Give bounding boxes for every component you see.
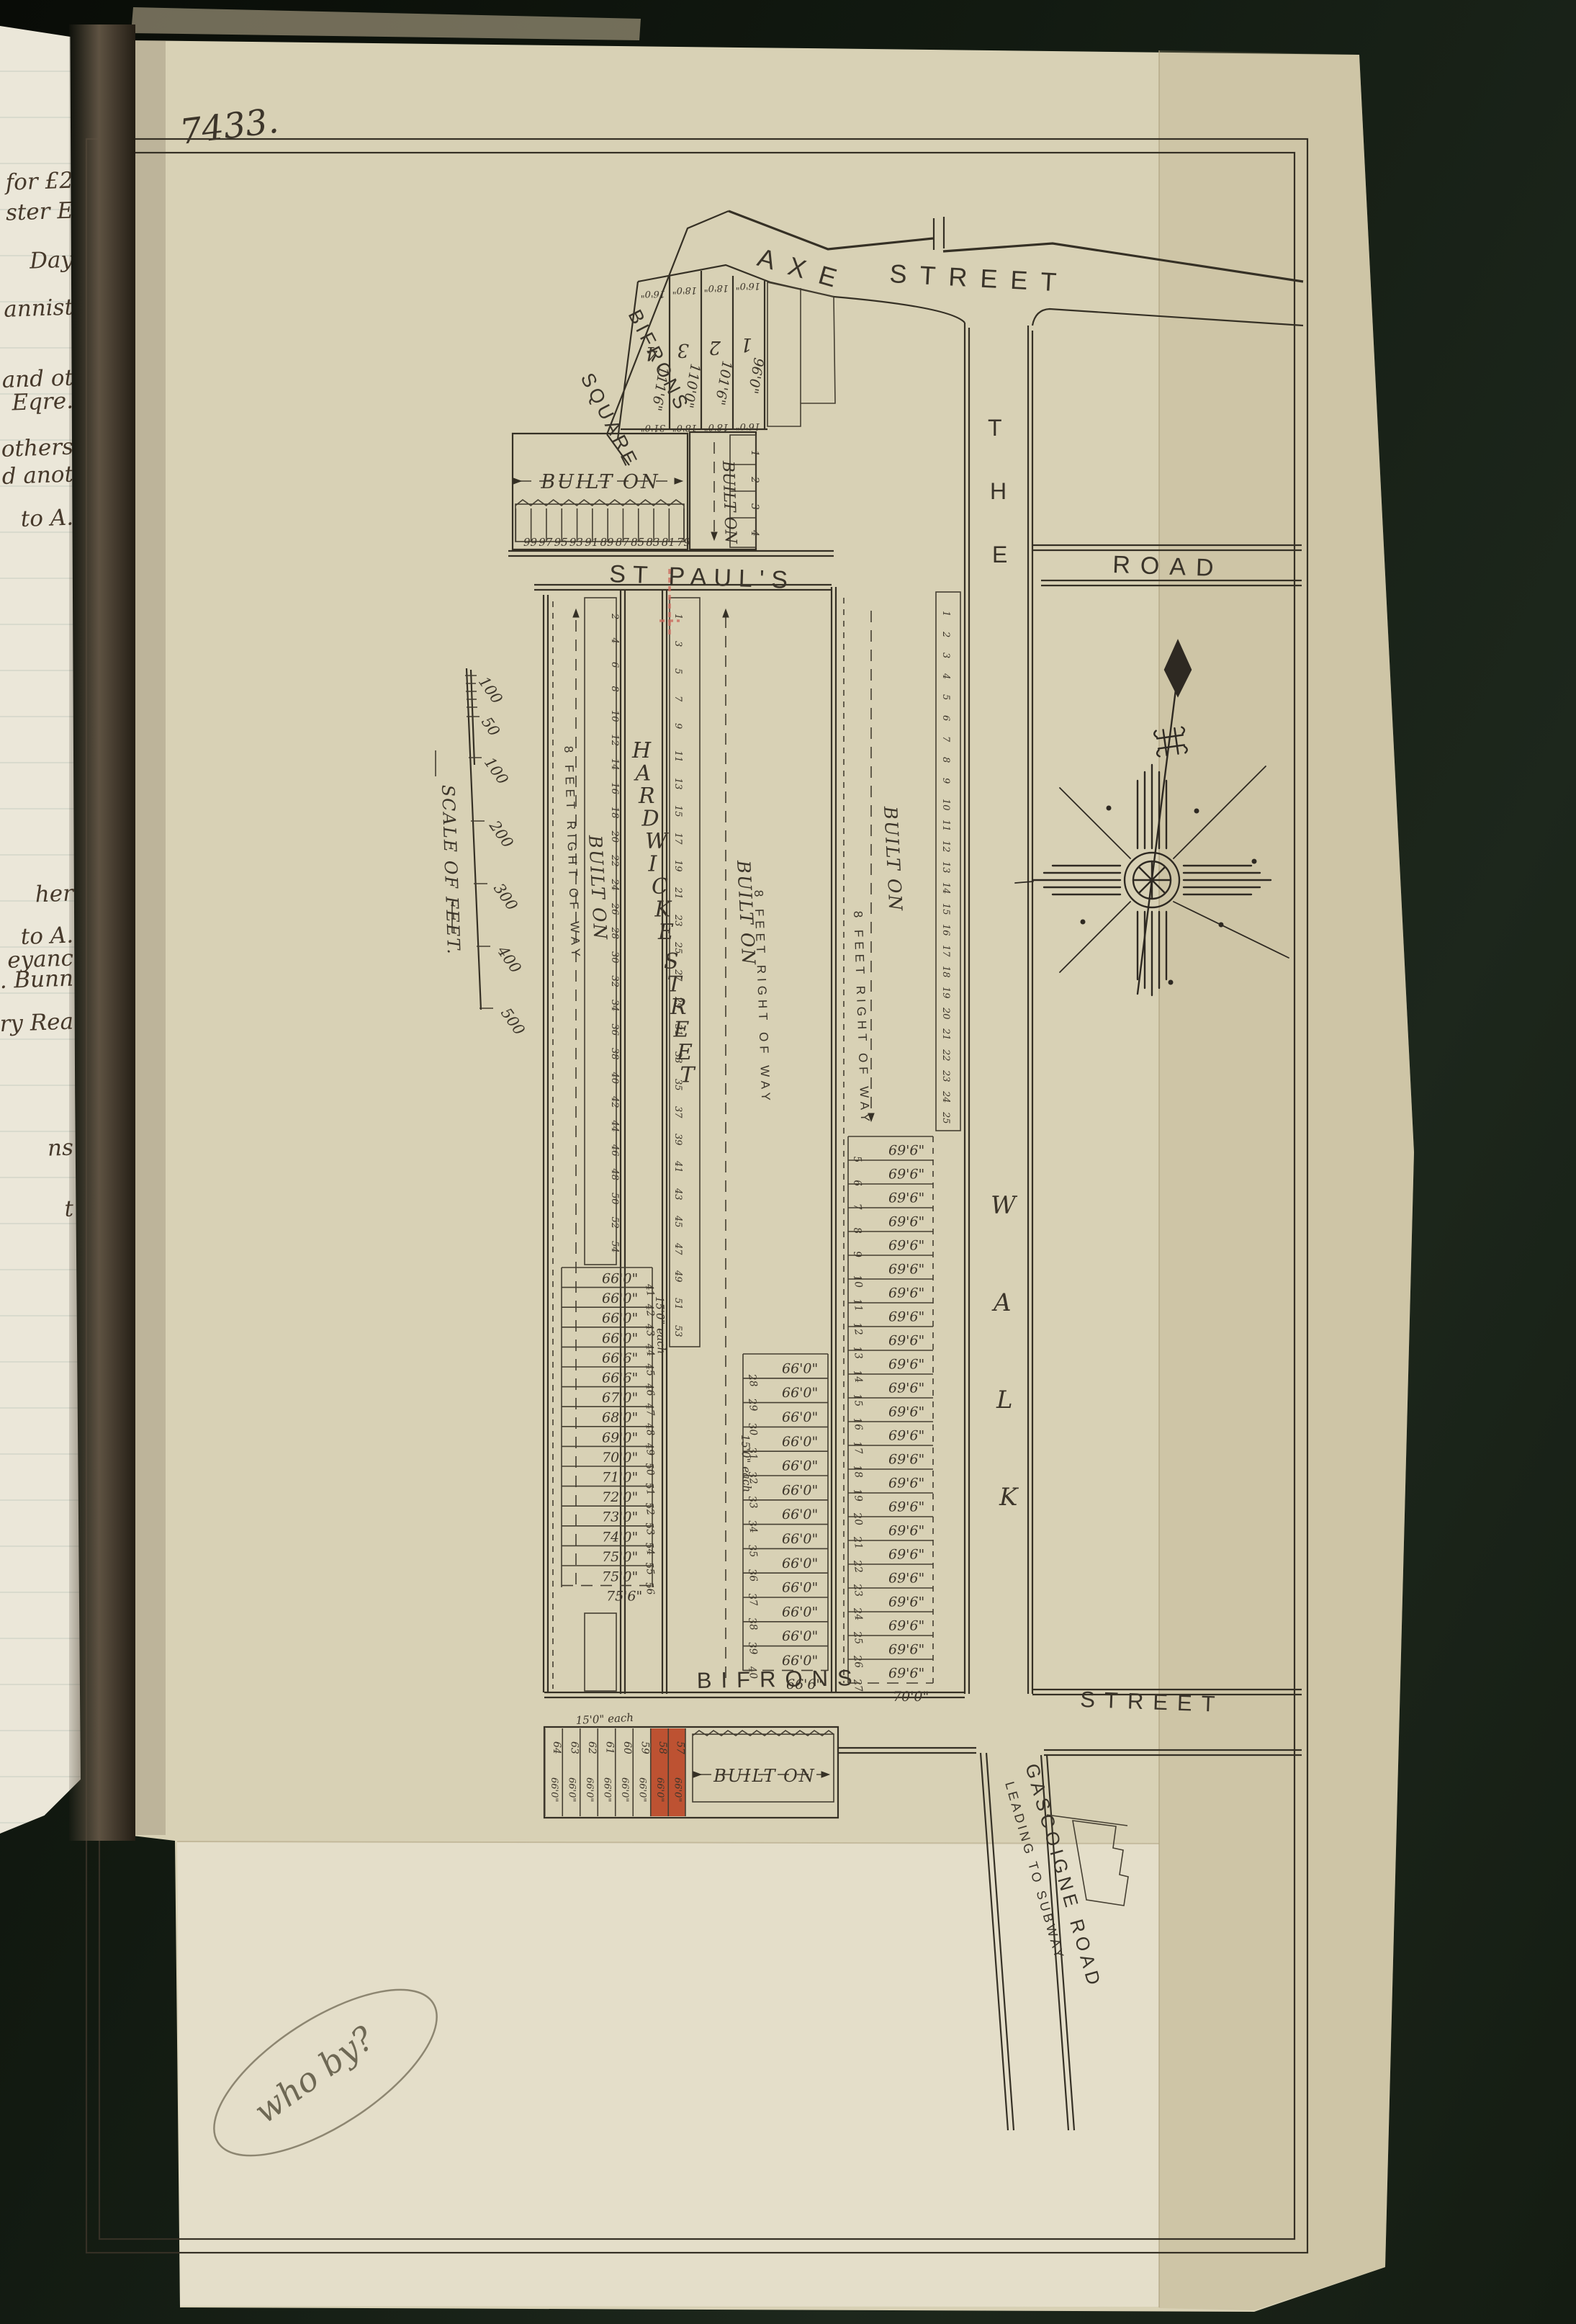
plot-number: 56 [643, 1582, 656, 1596]
street-letter: R [670, 995, 687, 1020]
house-number: 11 [940, 820, 951, 832]
house-number: 16 [940, 924, 951, 936]
ledger-fragment: her [0, 881, 74, 912]
house-number: 45 [672, 1215, 683, 1228]
plot-number: 29 [746, 1397, 759, 1412]
plot-value: 66'0" [782, 1604, 818, 1620]
street-letter: T [988, 415, 1002, 441]
plot-number: 48 [643, 1422, 656, 1437]
house-number: 8 [609, 686, 620, 692]
street-letter: R [638, 784, 655, 809]
plot-value: 69'6" [888, 1381, 924, 1396]
house-number: 42 [609, 1095, 620, 1108]
plot-number: 13 [851, 1345, 864, 1360]
house-number: 47 [672, 1242, 683, 1255]
plot-number: 57 [675, 1741, 686, 1754]
plot-number: 24 [851, 1606, 864, 1621]
plot-number: 99 [523, 536, 538, 549]
street-letter: T [680, 1063, 696, 1088]
plot-value: 69'6" [888, 1428, 924, 1444]
house-number: 46 [609, 1144, 620, 1157]
plot-value: 69'6" [888, 1286, 924, 1301]
plot-width: 16'0" [641, 288, 665, 299]
street-letter: I [648, 852, 658, 877]
plot-value: 66'0" [782, 1482, 818, 1498]
plot-value: 69'6" [888, 1404, 924, 1420]
house-number: 28 [609, 927, 620, 940]
house-number: 11 [672, 750, 683, 763]
plot-value: 69'6" [888, 1167, 924, 1183]
plot-value: 66'0" [782, 1628, 818, 1644]
plot-number: 21 [851, 1535, 864, 1550]
plot-number: 46 [643, 1382, 656, 1397]
street-label-bifrons: BIFRONS [697, 1665, 862, 1693]
house-number: 50 [609, 1193, 620, 1205]
ledger-fragment: try Rea [0, 1009, 74, 1040]
street-letter: A [634, 761, 652, 786]
house-number: 40 [609, 1072, 620, 1085]
house-number: 53 [672, 1325, 683, 1337]
plot-number: 20 [851, 1511, 864, 1526]
photographed-plan-page: for £2 ster E Day annist and ot Eqre. ot… [0, 0, 1576, 2324]
built-on-label: BUILT ON [719, 459, 739, 544]
plot-number: 38 [746, 1617, 759, 1631]
house-number: 6 [609, 662, 620, 668]
plot-number: 60 [621, 1741, 633, 1754]
ledger-fragment: ster E [0, 198, 74, 229]
plot-value: 69'6" [888, 1309, 924, 1325]
plot-number: 31 [746, 1446, 759, 1461]
plot-number: 17 [851, 1440, 864, 1455]
plot-value: 75'0" [602, 1549, 638, 1565]
plot-value: 69'6" [888, 1618, 924, 1634]
ledger-fragment: t [0, 1196, 74, 1227]
plot-number: 45 [643, 1362, 656, 1377]
house-number: 19 [672, 860, 683, 872]
plot-number: 54 [643, 1542, 656, 1556]
house-number: 12 [609, 735, 620, 747]
house-number: 24 [609, 879, 620, 892]
plot-value: 66'0" [782, 1531, 818, 1547]
plot-number: 34 [746, 1520, 759, 1534]
plot-width: 31'0" [641, 422, 665, 433]
house-number: 2 [940, 631, 951, 637]
house-number: 22 [609, 854, 620, 867]
ledger-fragment: B. Bunn [0, 966, 74, 997]
street-letter: E [992, 542, 1007, 567]
house-number: 18 [940, 966, 951, 978]
ledger-fragment: Day [0, 247, 74, 278]
plot-number: 41 [643, 1283, 656, 1298]
plot-value: 69'6" [888, 1666, 924, 1682]
house-number: 13 [672, 778, 683, 790]
plot-number: 81 [662, 536, 675, 549]
plot-number: 30 [746, 1422, 759, 1437]
street-letter: E [673, 1018, 690, 1043]
plot-value: 67'0" [602, 1390, 638, 1406]
plot-value: 66'0" [782, 1409, 818, 1425]
house-number: 54 [609, 1241, 620, 1253]
plot-number: 59 [639, 1741, 651, 1754]
plot-number: 61 [604, 1741, 616, 1754]
house-number: 10 [940, 799, 951, 811]
plot-number: 37 [746, 1592, 759, 1607]
plot-number: 53 [643, 1522, 656, 1536]
house-number: 51 [672, 1298, 683, 1310]
plot-value: 66'6" [602, 1350, 638, 1366]
plot-value: 69'6" [888, 1571, 924, 1587]
plot-number: 52 [643, 1502, 656, 1516]
ledger-fragment: ns [0, 1135, 74, 1166]
plot-number: 40 [746, 1665, 759, 1680]
street-label-bifrons-street: STREET [1080, 1687, 1225, 1717]
ledger-fragment: for £2 [0, 168, 74, 199]
plot-number: 44 [643, 1342, 656, 1358]
plot-number: 91 [585, 536, 598, 549]
house-number: 2 [749, 476, 760, 483]
plot-number: 35 [746, 1544, 759, 1558]
plot-value: 69'6" [888, 1214, 924, 1230]
plot-value: 69'6" [888, 1143, 924, 1159]
plot-end-value: 66'6" [786, 1677, 822, 1692]
house-number: 25 [940, 1111, 951, 1124]
plot-number: 83 [646, 536, 659, 549]
plot-number: 55 [643, 1561, 656, 1576]
house-number: 4 [609, 637, 620, 644]
plot-number: 12 [851, 1322, 864, 1336]
house-number: 5 [672, 668, 683, 674]
street-letter: E [676, 1040, 693, 1065]
plot-number: 2 [708, 336, 721, 358]
plot-number: 66'0" [602, 1777, 613, 1802]
house-number: 5 [940, 694, 951, 700]
house-number: 24 [940, 1090, 951, 1103]
house-number: 9 [672, 723, 683, 729]
plot-number: 63 [569, 1741, 580, 1754]
house-number: 7 [672, 696, 683, 702]
plot-value: 69'6" [888, 1452, 924, 1468]
plot-number: 25 [851, 1630, 864, 1645]
house-number: 9 [940, 778, 951, 784]
house-number: 1 [940, 611, 951, 616]
house-number: 3 [940, 652, 951, 658]
house-number: 1 [672, 614, 683, 619]
plot-width: 18'0" [672, 284, 697, 295]
house-number: 10 [609, 710, 620, 722]
plot-value: 66'0" [782, 1556, 818, 1571]
fold-panel-right [1159, 50, 1414, 2310]
book-gutter-shadow [69, 24, 135, 1841]
street-letter: E [657, 920, 674, 945]
plot-number: 42 [643, 1302, 656, 1317]
plot-value: 69'6" [888, 1357, 924, 1373]
street-letter: S [664, 949, 679, 974]
plot-end-value: 75'6" [606, 1588, 642, 1604]
plot-number: 66'0" [619, 1777, 630, 1802]
house-number: 43 [672, 1188, 683, 1201]
plot-number: 79 [677, 536, 691, 549]
plot-value: 69'6" [888, 1333, 924, 1349]
plot-width: 18'0" [672, 422, 697, 433]
house-number: 17 [940, 945, 951, 957]
plan-sheet: 7433. [0, 0, 1576, 2324]
plot-number: 33 [746, 1495, 759, 1509]
plot-value: 69'6" [888, 1523, 924, 1539]
street-letter: K [999, 1483, 1019, 1512]
house-number: 23 [672, 914, 683, 927]
plot-value: 66'0" [782, 1580, 818, 1596]
house-number: 6 [940, 715, 951, 721]
plot-number: 11 [851, 1298, 864, 1312]
house-number: 15 [940, 903, 951, 915]
plot-value: 66'0" [782, 1653, 818, 1669]
plot-number: 47 [643, 1401, 656, 1417]
house-number: 48 [609, 1168, 620, 1181]
plot-number: 22 [851, 1558, 864, 1574]
house-number: 44 [609, 1120, 620, 1133]
plot-number: 19 [851, 1488, 864, 1502]
house-number: 2 [609, 613, 620, 619]
house-number: 41 [672, 1160, 683, 1173]
built-on-label: BUILT ON [540, 471, 659, 493]
ledger-fragment: annist [0, 295, 74, 326]
street-letter: A [991, 1288, 1012, 1317]
plot-number: 16 [851, 1417, 864, 1431]
plot-value: 71'0" [602, 1470, 638, 1486]
house-number: 32 [609, 976, 620, 988]
street-letter: W [991, 1191, 1018, 1220]
street-letter: D [641, 807, 659, 832]
plot-value: 66'0" [782, 1360, 818, 1376]
top-page-edge [131, 7, 641, 40]
house-number: 21 [940, 1028, 951, 1041]
plot-width: 16'0" [736, 280, 760, 291]
plot-value: 68'0" [602, 1410, 638, 1426]
plot-number: 49 [643, 1442, 656, 1457]
house-number: 26 [609, 902, 620, 915]
house-number: 17 [672, 833, 683, 845]
house-number: 14 [940, 882, 951, 894]
plot-value: 66'6" [602, 1370, 638, 1386]
street-letter: K [654, 897, 672, 923]
plot-number: 66'0" [637, 1777, 648, 1802]
plot-width: 16'0" [736, 421, 760, 431]
plot-number: 36 [746, 1568, 759, 1582]
plot-number: 18 [851, 1464, 864, 1479]
house-number: 16 [609, 783, 620, 795]
ledger-fragment: d anot [0, 462, 74, 493]
plot-number: 89 [600, 536, 615, 549]
plot-number: 87 [616, 536, 630, 549]
street-letter: L [996, 1386, 1013, 1414]
plot-value: 66'0" [782, 1434, 818, 1450]
plot-number: 1 [740, 333, 752, 355]
house-number: 21 [672, 887, 683, 899]
house-number: 14 [609, 758, 620, 771]
ledger-fragment: others [0, 434, 74, 465]
plot-width: 18'0" [704, 282, 729, 293]
plot-number: 97 [539, 536, 553, 549]
street-letter: H [990, 478, 1007, 504]
house-number: 20 [940, 1007, 951, 1020]
plot-number: 93 [569, 536, 583, 549]
plot-number: 62 [586, 1741, 598, 1754]
house-number: 13 [940, 861, 951, 874]
house-number: 4 [749, 529, 760, 537]
house-number: 18 [609, 807, 620, 819]
plot-number: 26 [851, 1654, 864, 1669]
house-number: 22 [940, 1049, 951, 1062]
plot-value: 66'0" [602, 1311, 638, 1327]
plot-number: 58 [657, 1741, 668, 1754]
plot-value: 69'6" [888, 1547, 924, 1563]
ledger-fragment: to A. [0, 505, 74, 536]
plot-value: 66'0" [782, 1385, 818, 1401]
plot-number: 66'0" [584, 1777, 595, 1802]
house-number: 7 [940, 736, 951, 742]
plot-number: 4 [645, 342, 658, 364]
house-number: 36 [609, 1024, 620, 1036]
house-number: 4 [940, 673, 951, 679]
street-letter: T [667, 972, 683, 997]
plot-number: 66'0" [672, 1777, 683, 1802]
house-number: 8 [940, 757, 951, 763]
street-letter: H [631, 738, 652, 763]
plot-value: 66'0" [602, 1291, 638, 1306]
house-number: 49 [672, 1270, 683, 1283]
plot-number: 27 [851, 1677, 864, 1692]
plot-number: 15 [851, 1393, 864, 1407]
plot-value: 66'0" [602, 1271, 638, 1287]
house-number: 20 [609, 830, 620, 843]
plot-end-value: 70'0" [893, 1689, 929, 1705]
plot-value: 66'0" [782, 1458, 818, 1474]
plot-width: 18'0" [704, 421, 729, 432]
plot-value: 74'0" [602, 1529, 638, 1545]
plot-number: 50 [643, 1462, 656, 1476]
plot-number: 66'0" [549, 1777, 559, 1802]
plot-number: 3 [677, 339, 689, 361]
plot-number: 43 [643, 1322, 656, 1337]
house-number: 3 [672, 641, 683, 647]
plot-number: 95 [554, 536, 568, 549]
plot-number: 66'0" [567, 1777, 577, 1802]
plot-number: 23 [851, 1582, 864, 1597]
plot-value: 69'6" [888, 1594, 924, 1610]
plot-number: 10 [851, 1274, 864, 1288]
plot-value: 69'6" [888, 1262, 924, 1278]
house-number: 15 [672, 805, 683, 817]
house-number: 37 [672, 1106, 683, 1118]
street-label-road: ROAD [1112, 551, 1224, 582]
house-number: 38 [609, 1048, 620, 1060]
house-number: 23 [940, 1069, 951, 1082]
street-letter: W [645, 829, 669, 854]
plot-value: 72'0" [602, 1489, 638, 1505]
house-number: 12 [940, 840, 951, 853]
plot-value: 70'0" [602, 1450, 638, 1466]
plot-number: 32 [746, 1471, 759, 1485]
house-number: 1 [749, 450, 760, 457]
plot-value: 66'0" [602, 1330, 638, 1346]
ledger-fragment: Eqre. [0, 388, 74, 419]
house-number: 30 [609, 951, 620, 964]
plot-number: 39 [746, 1641, 759, 1656]
plot-value: 69'6" [888, 1238, 924, 1254]
house-number: 19 [940, 987, 951, 999]
plot-value: 69'6" [888, 1476, 924, 1491]
plot-value: 66'0" [782, 1507, 818, 1522]
plot-number: 64 [551, 1741, 562, 1754]
built-on-label: BUILT ON [713, 1766, 816, 1786]
plot-value: 69'6" [888, 1499, 924, 1515]
house-number: 34 [609, 1000, 620, 1012]
house-number: 52 [609, 1217, 620, 1229]
plot-number: 28 [746, 1373, 759, 1388]
plot-value: 69'6" [888, 1190, 924, 1206]
plot-number: 85 [631, 536, 644, 549]
plot-value: 69'0" [602, 1430, 638, 1445]
house-number: 39 [672, 1134, 683, 1146]
plot-number: 51 [643, 1482, 656, 1497]
plot-number: 66'0" [654, 1777, 665, 1802]
plot-value: 73'0" [602, 1509, 638, 1525]
plot-value: 75'0" [602, 1569, 638, 1585]
house-number: 3 [749, 503, 760, 510]
plot-value: 69'6" [888, 1642, 924, 1658]
street-letter: C [652, 874, 668, 899]
plot-number: 14 [851, 1369, 864, 1383]
